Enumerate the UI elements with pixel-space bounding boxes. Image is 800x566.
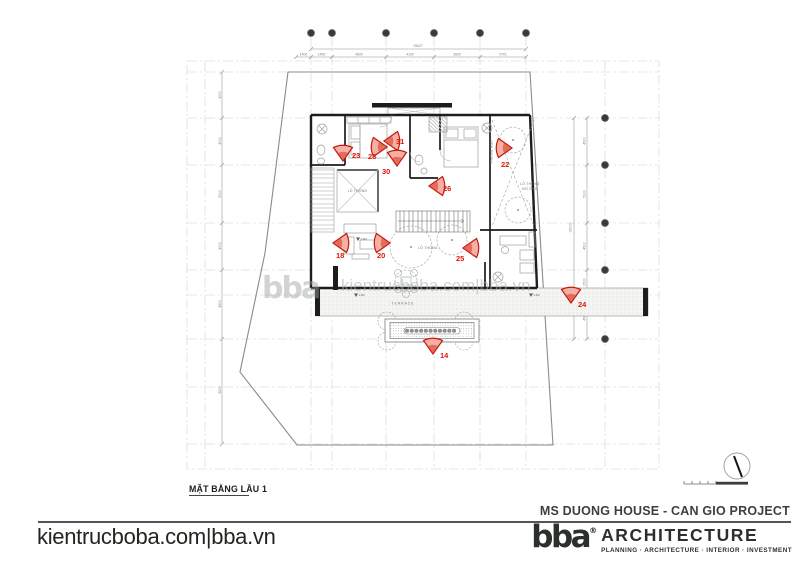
label-terrace: TERRACE [392,302,415,306]
label-void-left: LỖ THÔNG [348,188,368,193]
floor-plan-drawing: 19627 19000 1400140046004100360047014000… [0,0,800,566]
logo-tagline: PLANNING · ARCHITECTURE · INTERIOR · INV… [601,547,792,554]
svg-text:1.0M: 1.0M [534,293,541,297]
building-plan: 1.0M 1.0M 1.0M LỖ THÔNG LỖ THÔNG LỖ THÔN… [311,103,648,350]
project-title: MS DUONG HOUSE - CAN GIO PROJECT [540,504,790,518]
dimension-value: 4000 [218,91,222,99]
grid-bubble [602,115,609,122]
dimension-value: 2500 [583,278,587,286]
marker-number: 28 [368,152,376,161]
grid-bubble [602,267,609,274]
dimension-value: 5200 [218,386,222,394]
grid-bubble [523,30,530,37]
marker-number: 24 [578,300,587,309]
marker-number: 31 [396,137,404,146]
label-bedroom-vertical: PHÒNG NGỦ [489,140,494,163]
page: 19627 19000 1400140046004100360047014000… [0,0,800,566]
dimension-value: 3600 [453,52,461,56]
logo-company-name: ARCHITECTURE [601,527,792,545]
dimension-value: 4500 [218,300,222,308]
marker-number: 22 [501,160,509,169]
marker-number: 23 [352,151,360,160]
grid-bubble [602,336,609,343]
dimension-value: 4000 [218,137,222,145]
logo-brand-mark: bba® [531,524,597,550]
dimension-value: 4600 [355,52,363,56]
dimension-value: 4500 [583,137,587,145]
dimension-value: 1400 [318,52,326,56]
dim-top-overall: 19627 [413,44,423,48]
dimension-value: 1400 [300,52,308,56]
svg-text:bba: bba [262,271,319,306]
staircase-central [396,211,470,232]
grid-bubble [308,30,315,37]
svg-text:1.0M: 1.0M [361,237,368,241]
company-logo: bba® ARCHITECTURE PLANNING · ARCHITECTUR… [531,524,792,554]
scale-bar [684,481,748,485]
dimension-value: 4701 [499,52,507,56]
north-compass [724,453,750,479]
website-url: kientrucboba.com|bba.vn [37,524,276,550]
marker-number: 14 [440,351,449,360]
grid-bubble [602,220,609,227]
grid-bubble [329,30,336,37]
label-void-right-1: LỖ THÔNG [520,181,540,186]
grid-bubble [477,30,484,37]
canopy [372,103,452,108]
marker-number: 26 [443,184,451,193]
dimension-value: 5000 [218,190,222,198]
label-void-right-2b: ĐỔ ỐNG [522,186,537,191]
footer-divider [38,521,791,523]
dim-right-overall: 19000 [569,223,573,233]
svg-text:kientrucboba.com|bba.vn: kientrucboba.com|bba.vn [341,276,531,295]
plan-title: MẶT BẰNG LẦU 1 [189,484,267,494]
dimension-value: 5000 [583,190,587,198]
marker-number: 18 [336,251,344,260]
grid-bubble [383,30,390,37]
dimension-value: 4500 [583,242,587,250]
marker-number: 25 [456,254,464,263]
registered-mark-icon: ® [589,526,597,535]
dimension-value: 4000 [218,242,222,250]
marker-number: 30 [382,167,390,176]
dimension-value: 4100 [406,52,414,56]
marker-number: 20 [377,251,385,260]
label-void-court: LỖ THÔNG [418,245,438,250]
grid-bubble [602,162,609,169]
grid-bubble [431,30,438,37]
